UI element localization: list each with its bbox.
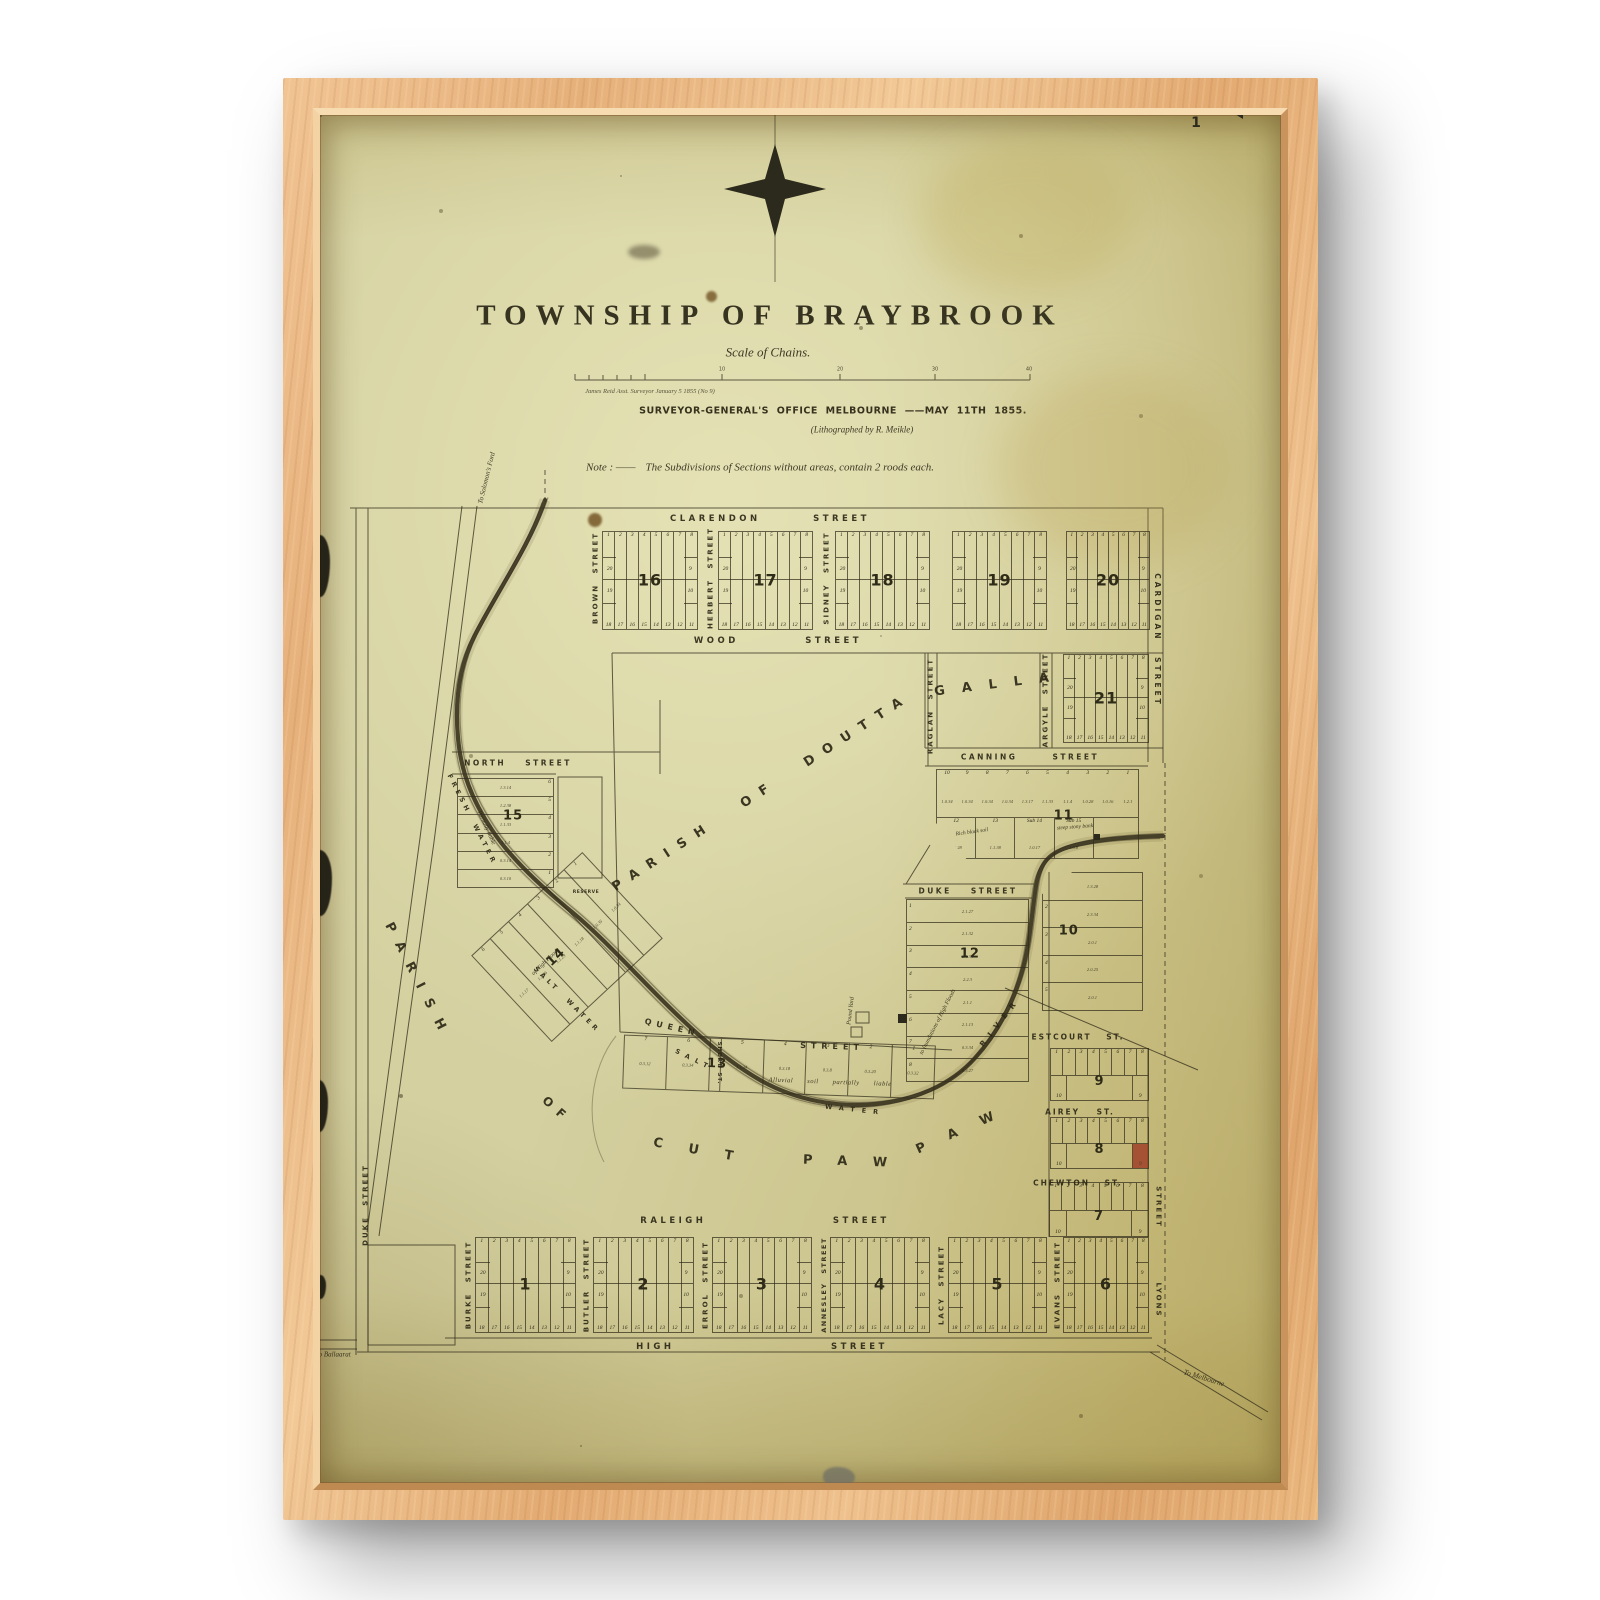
lot-number: 5: [1104, 1119, 1107, 1125]
lot-number: 13: [1121, 623, 1127, 629]
lot-number: 9: [921, 567, 924, 573]
lot-number: 10: [920, 589, 926, 595]
lot-strip: 61.3.17: [1017, 770, 1037, 817]
lot-area: 1.1.38: [990, 846, 1001, 851]
lot-number: 3: [742, 1239, 745, 1245]
lot-number: 4: [992, 533, 995, 539]
section-18: 118217316415514613712811201991018: [835, 531, 930, 630]
lot-number: 20: [835, 1271, 841, 1277]
lot-number: 2: [548, 853, 551, 859]
label-cardigan: CARDIGAN STREET: [1153, 573, 1161, 707]
lot-number: 12: [790, 1326, 796, 1332]
section-1: 11821731641551461371281120199101: [475, 1237, 576, 1333]
corner-lots-right: 910: [679, 1262, 693, 1307]
lot-column: 613: [1117, 1238, 1128, 1332]
surveyor-signature: James Reid Asst. Surveyor January 5 1855…: [585, 389, 715, 396]
label-short_st: SHORT ST.: [715, 1042, 721, 1085]
corner-lots-left: 2019: [713, 1262, 727, 1307]
lot-number: 9: [1139, 1162, 1142, 1168]
map-note: Note : ——The Subdivisions of Sections wi…: [586, 463, 934, 474]
section-2: 11821731641551461371281120199102: [593, 1237, 694, 1333]
lot-number: 12: [672, 1326, 678, 1332]
lot-number: 6: [897, 1239, 900, 1245]
lot-number: 13: [542, 1326, 548, 1332]
lot-number: 19: [723, 589, 729, 595]
lot-number: 8: [1039, 1239, 1042, 1245]
lot-area: 0.3.12: [639, 1062, 650, 1067]
section-number: 16: [638, 570, 662, 589]
lot-strip: 42.2.3: [907, 968, 1028, 991]
corner-lot: 9: [1132, 1076, 1148, 1100]
lot-column: 613: [662, 532, 674, 629]
lot-strip: 52.0.1: [1043, 983, 1142, 1010]
lot-number: 16: [979, 623, 985, 629]
page-number: 1: [1191, 116, 1201, 130]
section-number: 8: [1094, 1142, 1104, 1157]
lot-number: 6: [666, 533, 669, 539]
lot-column: 613: [778, 532, 790, 629]
lot-number: 7: [1133, 533, 1136, 539]
corner-lots-left: 2019: [836, 557, 849, 604]
lot-number: 17: [846, 1326, 852, 1332]
lot-column: 217: [615, 532, 627, 629]
lot-number: 11: [689, 623, 694, 629]
lot-number: 11: [921, 623, 926, 629]
lot-area: 1.0.34: [962, 800, 973, 805]
lot-number: 8: [804, 1239, 807, 1245]
lot-number: 17: [964, 1326, 970, 1332]
lot-number: 14: [883, 1326, 889, 1332]
lot-column: 217: [961, 1238, 973, 1332]
lot-number: 14: [653, 623, 659, 629]
lot-area: 0.3.34: [682, 1063, 693, 1068]
lot-column: 316: [738, 1238, 750, 1332]
lot-number: 12: [909, 623, 915, 629]
lot-number: 6: [1015, 1239, 1018, 1245]
label-canning: CANNING STREET: [961, 753, 1099, 761]
lot-area: 2.2.3: [963, 978, 972, 983]
lot-area: 1.1.17: [518, 988, 529, 999]
lot-area: 1.0.35: [592, 919, 603, 930]
lot-number: 15: [871, 1326, 877, 1332]
lot-number: 15: [517, 1326, 523, 1332]
lot-column: 613: [895, 532, 907, 629]
lithographer-line: (Lithographed by R. Meikle): [811, 426, 913, 435]
lot-number: 9: [1142, 567, 1145, 573]
lot-number: 18: [1069, 623, 1075, 629]
lot-number: 4: [1092, 1050, 1095, 1056]
lot-number: 13: [993, 819, 999, 825]
lot-number: 9: [1139, 1094, 1142, 1100]
lot-number: 20: [598, 1271, 604, 1277]
lot-column: 316: [856, 1238, 868, 1332]
lot-number: 7: [1129, 1050, 1132, 1056]
lot-number: 14: [765, 1326, 771, 1332]
lot-number: 1: [548, 871, 551, 877]
lot-number: 12: [1130, 1326, 1136, 1332]
lot-number: 6: [1121, 1239, 1124, 1245]
label-annesley: ANNESLEY STREET: [821, 1237, 828, 1333]
lot-number: 7: [910, 1239, 913, 1245]
lot-number: 5: [548, 798, 551, 804]
lot-column: 217: [843, 1238, 855, 1332]
lot-number: 19: [957, 589, 963, 595]
lot-area: 0.3.18: [779, 1067, 790, 1072]
lot-number: 7: [1131, 1239, 1134, 1245]
lot-number: 7: [1129, 1119, 1132, 1125]
lot-number: 12: [1130, 736, 1136, 742]
lot-number: 4: [518, 913, 524, 919]
lot-strips: 61.3.1451.2.3841.1.3331.1.420.3.1410.3.1…: [458, 779, 553, 887]
lot-number: 5: [909, 995, 912, 1001]
lot-number: 19: [953, 1293, 959, 1299]
lot-number: 18: [1066, 1326, 1072, 1332]
lot-column: 217: [1075, 1238, 1086, 1332]
lot-column: 1: [1051, 1049, 1063, 1075]
lot-number: 4: [1099, 656, 1102, 662]
lot-area: 1.3.14: [500, 786, 511, 791]
corner-lots-right: 910: [561, 1262, 575, 1307]
lot-column: 8: [1137, 1049, 1148, 1075]
lot-number: 8: [690, 533, 693, 539]
lot-number: 20: [953, 1271, 959, 1277]
lot-number: 11: [804, 623, 809, 629]
section-number: 6: [1100, 1275, 1112, 1294]
lot-number: 11: [921, 1326, 926, 1332]
lot-number: 19: [607, 589, 613, 595]
section-16: 118217316415514613712811201991016: [602, 531, 698, 630]
label-airey: AIREY ST.: [1045, 1108, 1115, 1116]
lot-number: 1: [840, 533, 843, 539]
lot-area: 2.0.1: [1088, 940, 1097, 945]
scale-bar: [575, 374, 1030, 380]
lot-number: 4: [548, 816, 551, 822]
lot-number: 3: [1080, 1119, 1083, 1125]
lot-number: 17: [618, 623, 624, 629]
lot-number: 2: [909, 927, 912, 933]
lot-area: 1.1.33: [1042, 800, 1053, 805]
lot-area: 0.3.14: [500, 859, 511, 864]
section-number: 11: [1054, 808, 1074, 823]
lot-area: 1.2.1: [1123, 800, 1132, 805]
lot-number: 3: [981, 533, 984, 539]
section-3: 11821731641551461371281120199103: [712, 1237, 812, 1333]
lot-number: 19: [480, 1293, 486, 1299]
lot-number: 2: [1106, 771, 1109, 777]
label-lyons_st: STREET: [1155, 1186, 1162, 1228]
lot-number: 16: [1087, 1326, 1093, 1332]
lot-number: 14: [886, 623, 892, 629]
lot-number: 5: [530, 1239, 533, 1245]
lot-number: 20: [1067, 686, 1073, 692]
lot-number: 13: [778, 1326, 784, 1332]
lot-column: 217: [848, 532, 860, 629]
lot-strip: 12.1.27: [907, 900, 1028, 923]
lot-area: 1.0.34: [1002, 800, 1013, 805]
lot-number: 9: [685, 1271, 688, 1277]
section-number: 18: [870, 570, 894, 589]
corner-lots-left: 2019: [831, 1262, 845, 1307]
section-number: 21: [1094, 688, 1118, 707]
corner-lots-right: 910: [684, 557, 697, 604]
lot-number: 5: [1104, 1050, 1107, 1056]
lot-number: 10: [1139, 1293, 1145, 1299]
lot-number: 10: [801, 1293, 807, 1299]
lot-number: 5: [1045, 988, 1048, 994]
lot-column: 613: [1119, 532, 1129, 629]
lot-number: 6: [899, 533, 902, 539]
lot-number: 1: [1127, 771, 1130, 777]
lot-number: 18: [722, 623, 728, 629]
map-world: TOWNSHIP OF BRAYBROOK Scale of Chains. J…: [320, 115, 1281, 1483]
lot-number: 18: [956, 623, 962, 629]
corner-lots-left: 2019: [603, 557, 616, 604]
lot-strip: 131.1.38: [976, 818, 1015, 858]
lot-number: 15: [989, 1326, 995, 1332]
lot-strip: 31.0.28: [1078, 770, 1098, 817]
lot-column: 316: [619, 1238, 632, 1332]
stain: [706, 291, 717, 302]
lot-number: 4: [990, 1239, 993, 1245]
corner-lots-left: 2019: [953, 557, 966, 604]
lot-number: 10: [1056, 1094, 1062, 1100]
lot-strip: 22.1.32: [907, 923, 1028, 946]
lot-number: 5: [1110, 1239, 1113, 1245]
lot-number: 7: [1129, 1184, 1132, 1190]
lot-strips: 70.3.1260.3.3451.1.3440.3.1830.3.820.3.2…: [623, 1036, 935, 1099]
lot-column: 7: [1125, 1049, 1137, 1075]
lot-number: 15: [1098, 736, 1104, 742]
lot-number: 5: [655, 533, 658, 539]
lot-number: 15: [641, 623, 647, 629]
lot-area: 1.1.4: [501, 841, 510, 846]
lot-number: 4: [784, 1042, 787, 1048]
lot-column: 1: [1051, 1118, 1063, 1143]
lot-number: 7: [1131, 656, 1134, 662]
lot-area: 1.3.28: [1087, 885, 1098, 890]
lot-number: 8: [1142, 656, 1145, 662]
lot-number: 6: [909, 1018, 912, 1024]
lot-number: 12: [1025, 1326, 1031, 1332]
section-5: 11821731641551461371281120199105: [948, 1237, 1047, 1333]
note-text: The Subdivisions of Sections without are…: [645, 462, 934, 474]
section-15: 61.3.1451.2.3841.1.3331.1.420.3.1410.3.1…: [457, 778, 554, 888]
lot-strip: 31.1.4: [458, 834, 553, 852]
lot-number: 14: [647, 1326, 653, 1332]
lot-number: 13: [1119, 1326, 1125, 1332]
lot-number: 9: [803, 1271, 806, 1277]
lot-number: 16: [1090, 623, 1096, 629]
lot-number: 5: [767, 1239, 770, 1245]
lot-number: 3: [1089, 656, 1092, 662]
lot-strip: Sub 141.0.17: [1015, 818, 1054, 858]
lot-number: 18: [479, 1326, 485, 1332]
lot-number: 5: [1002, 1239, 1005, 1245]
lot-number: 10: [919, 1293, 925, 1299]
lot-number: 9: [921, 1271, 924, 1277]
lot-number: 2: [1078, 1239, 1081, 1245]
lot-area: 2.1.13: [962, 1023, 973, 1028]
section-number: 7: [1094, 1209, 1104, 1224]
lot-column: 4: [1088, 1049, 1100, 1075]
lot-number: 7: [1027, 1239, 1030, 1245]
note-label: Note : ——: [586, 462, 636, 474]
lot-column: 613: [775, 1238, 787, 1332]
lot-number: 5: [770, 533, 773, 539]
lot-number: 20: [723, 567, 729, 573]
lot-number: 19: [717, 1293, 723, 1299]
lot-number: 17: [850, 623, 856, 629]
lot-number: 2: [735, 533, 738, 539]
lot-number: 16: [504, 1326, 510, 1332]
lot-number: 16: [622, 1326, 628, 1332]
lot-number: 20: [480, 1271, 486, 1277]
lot-number: 10: [565, 1293, 571, 1299]
corner-lots-right: 910: [799, 557, 812, 604]
corner-lot: 10: [1050, 1211, 1067, 1236]
lot-number: 10: [1056, 1162, 1062, 1168]
lot-number: 3: [505, 1239, 508, 1245]
lot-column: 217: [489, 1238, 502, 1332]
lot-number: 3: [1086, 771, 1089, 777]
lot-strip: 91.0.34: [957, 770, 977, 817]
section-number: 3: [756, 1275, 768, 1294]
lot-number: 4: [518, 1239, 521, 1245]
lot-number: 20: [1067, 1271, 1073, 1277]
lot-column: 8: [1137, 1118, 1148, 1143]
highlighted-lot: 9: [1132, 1144, 1148, 1168]
lot-number: 7: [911, 533, 914, 539]
lot-number: 2: [1045, 905, 1048, 911]
lot-number: 11: [1038, 623, 1043, 629]
section-19: 118217316415514613712811201991019: [952, 531, 1047, 630]
lot-area: 1.0.28: [1082, 800, 1093, 805]
lot-area: 2.1.32: [962, 932, 973, 937]
lot-number: 13: [897, 623, 903, 629]
lot-number: 4: [754, 1239, 757, 1245]
lot-number: 15: [1100, 623, 1106, 629]
lot-area: 2.1.1: [963, 1000, 972, 1005]
lot-number: 3: [747, 533, 750, 539]
lot-number: 8: [568, 1239, 571, 1245]
lot-number: 1: [1055, 1119, 1058, 1125]
section-number: 9: [1094, 1073, 1104, 1088]
section-number: 5: [991, 1275, 1003, 1294]
lot-area: 2.1.27: [962, 909, 973, 914]
lot-area: 1.0.17: [1029, 846, 1040, 851]
lot-number: 5: [1046, 771, 1049, 777]
lot-number: 7: [794, 533, 797, 539]
lot-number: 1: [957, 533, 960, 539]
stain: [588, 513, 602, 527]
corner-lot: 10: [1051, 1144, 1067, 1168]
lot-number: 6: [1121, 656, 1124, 662]
lot-number: 14: [1001, 1326, 1007, 1332]
lot-column: 6: [1112, 1118, 1124, 1143]
lot-number: 11: [803, 1326, 808, 1332]
lot-column: 217: [725, 1238, 737, 1332]
section-10: 11.3.2822.3.3432.0.142.0.2552.0.110: [1042, 872, 1143, 1011]
corner-lots-left: 2019: [949, 1262, 963, 1307]
map-title: TOWNSHIP OF BRAYBROOK: [476, 302, 1064, 331]
lot-number: 15: [753, 1326, 759, 1332]
lot-number: 6: [481, 947, 487, 953]
lot-number: 5: [1004, 533, 1007, 539]
lot-number: 4: [872, 1239, 875, 1245]
lot-area: 0.3.8: [823, 1068, 832, 1073]
oxbow-creek: [592, 1036, 616, 1162]
scale-tick-label: 40: [1026, 368, 1032, 373]
corner-lot: 10: [1051, 1076, 1067, 1100]
lot-number: 7: [678, 533, 681, 539]
lot-number: 4: [1099, 1239, 1102, 1245]
lot-number: 1: [835, 1239, 838, 1245]
lot-number: 3: [864, 533, 867, 539]
lot-strips: 101.0.3491.0.3481.0.3471.0.3461.3.1751.1…: [937, 770, 1138, 818]
lot-number: 6: [1016, 533, 1019, 539]
lot-column: 217: [1077, 532, 1087, 629]
lot-number: 8: [922, 533, 925, 539]
lot-number: 8: [1143, 533, 1146, 539]
lot-strip: 61.3.14: [458, 779, 553, 797]
lot-column: 6: [1112, 1049, 1124, 1075]
lot-number: 1: [909, 904, 912, 910]
lot-number: 10: [1037, 589, 1043, 595]
section-20: 118217316415514613712811201991020: [1066, 531, 1150, 630]
corner-lots-left: 2019: [1064, 678, 1076, 720]
lot-number: 5: [1110, 656, 1113, 662]
label-duke_v: DUKE STREET: [363, 1164, 370, 1246]
lot-number: 14: [1109, 736, 1115, 742]
lot-column: 613: [893, 1238, 905, 1332]
lot-area: 1.1.34: [736, 1065, 747, 1070]
label-lacy: LACY STREET: [939, 1245, 946, 1325]
lot-number: 14: [1003, 623, 1009, 629]
lot-number: 13: [665, 623, 671, 629]
lot-number: 3: [978, 1239, 981, 1245]
label-raglan: RAGLAN STREET: [928, 658, 935, 754]
lot-number: 10: [683, 1293, 689, 1299]
section-6: 11821731641551461371281120199106: [1063, 1237, 1149, 1333]
lot-area: 1.1.4: [1063, 800, 1072, 805]
corner-lots-left: 2019: [1064, 1262, 1076, 1307]
lot-number: 3: [1089, 1239, 1092, 1245]
lot-number: 2: [555, 879, 561, 885]
lot-column: 5: [1100, 1049, 1112, 1075]
lot-number: 4: [636, 1239, 639, 1245]
lot-number: 12: [1131, 623, 1137, 629]
lot-number: 12: [1026, 623, 1032, 629]
lot-number: 11: [1141, 1326, 1146, 1332]
lot-number: 9: [1141, 1271, 1144, 1277]
lot-number: 10: [1055, 1230, 1061, 1236]
lot-number: 16: [629, 623, 635, 629]
stain: [920, 143, 1130, 293]
lot-column: 613: [1012, 532, 1024, 629]
lot-column: 217: [731, 532, 743, 629]
corner-lots-right: 910: [916, 557, 929, 604]
lot-number: 16: [1087, 736, 1093, 742]
lot-number: 3: [909, 949, 912, 955]
label-evans: EVANS STREET: [1055, 1241, 1062, 1329]
lot-number: 1: [607, 533, 610, 539]
lot-number: 6: [1026, 771, 1029, 777]
lot-number: 20: [717, 1271, 723, 1277]
corner-lots-right: 910: [797, 1262, 811, 1307]
label-north: NORTH STREET: [464, 759, 572, 767]
lot-number: 2: [848, 1239, 851, 1245]
lot-column: 316: [501, 1238, 514, 1332]
